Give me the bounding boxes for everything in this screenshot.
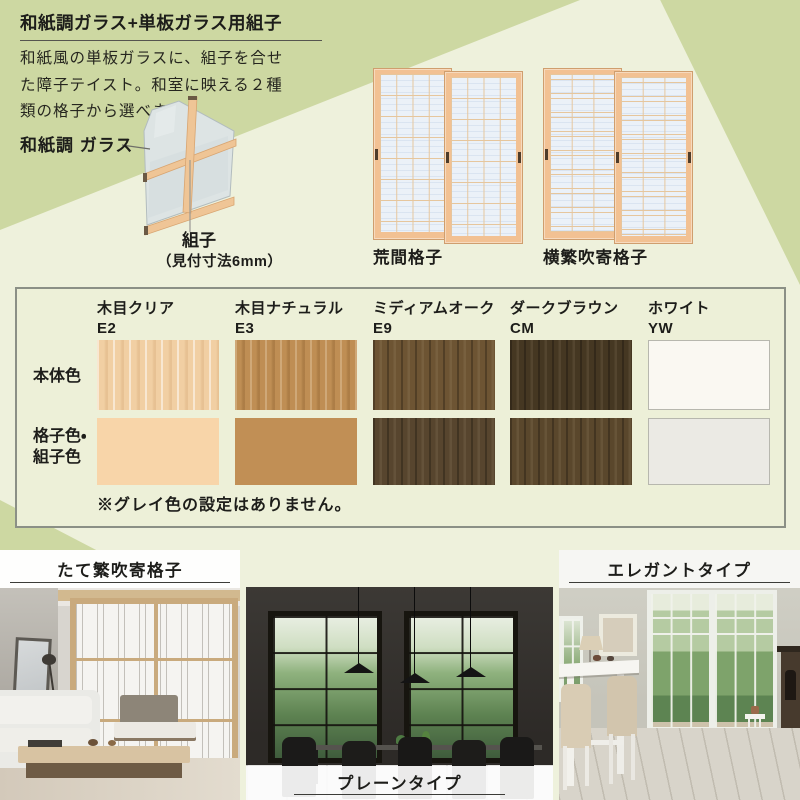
swatch-grille-yw: [648, 418, 770, 485]
swatch-grille-cm: [510, 418, 632, 485]
chair-leg: [585, 746, 589, 786]
washi-glass-pane: [451, 77, 516, 236]
color-column-header: ミディアムオーク E9: [373, 299, 495, 338]
window-handle: [375, 149, 378, 160]
chair-leg: [609, 734, 613, 784]
photo-plain-type-interior: プレーンタイプ: [246, 587, 553, 800]
beige-chair-back: [561, 684, 591, 748]
table-base: [26, 762, 182, 778]
window-panel: [444, 71, 523, 244]
swatch-grille-e2: [97, 418, 219, 485]
books: [28, 740, 62, 747]
photo-tateshige-interior: たて繁吹寄格子: [0, 550, 240, 800]
arama-grille-label: 荒間格子: [373, 244, 443, 268]
yokoshige-grille-window: [543, 66, 693, 244]
chair-seat: [114, 722, 196, 738]
photo-label-banner: たて繁吹寄格子: [0, 550, 240, 588]
pendant-cord: [414, 587, 415, 675]
window-handle: [446, 152, 449, 163]
color-name: ミディアムオーク: [373, 299, 495, 319]
color-column-header: 木目ナチュラル E3: [235, 299, 344, 338]
color-code: YW: [648, 319, 710, 339]
label-underline: [569, 582, 790, 583]
yokoshige-grille-label: 横繁吹寄格子: [543, 244, 648, 268]
cup: [607, 656, 614, 661]
wall-sconce-arm: [589, 650, 591, 662]
swatch-body-cm: [510, 340, 632, 410]
swatch-body-e9: [373, 340, 495, 410]
window-handle: [688, 152, 691, 163]
swatch-body-yw: [648, 340, 770, 410]
swatch-grille-e9: [373, 418, 495, 485]
pendant-cord: [470, 587, 471, 669]
swatch-body-e2: [97, 340, 219, 410]
sofa-cushion: [0, 696, 92, 724]
kumiko-size-note: （見付寸法6mm）: [157, 250, 282, 271]
washi-glass-diagram: [110, 92, 250, 247]
high-table-top: [559, 660, 639, 677]
no-gray-note: ※グレイ色の設定はありません。: [97, 491, 352, 515]
whitewashed-floor: [559, 728, 800, 800]
photo-label-banner: プレーンタイプ: [246, 766, 553, 800]
kumiko-diagram-label: 組子: [182, 226, 216, 251]
washi-glass-pane: [380, 74, 445, 232]
photo-label-banner: エレガントタイプ: [559, 550, 800, 588]
window-panel: [614, 71, 693, 244]
grille-color-row-label: 格子色・ 組子色: [33, 427, 86, 469]
window-panel: [373, 68, 452, 240]
color-name: ダークブラウン: [510, 299, 619, 319]
fireplace: [781, 652, 800, 728]
beige-chair-back: [607, 676, 637, 736]
chair-leg: [563, 746, 567, 790]
row-label-line: 組子色: [33, 448, 86, 469]
floor-lamp-shade: [42, 654, 56, 665]
color-column-header: ダークブラウン CM: [510, 299, 619, 338]
shoji-rail: [76, 658, 232, 661]
bowl: [108, 740, 116, 746]
planter-pot: [751, 706, 759, 714]
fireplace-opening: [785, 670, 796, 700]
color-name: 木目クリア: [97, 299, 175, 319]
picture-frame: [599, 614, 637, 656]
swatch-grille-e3: [235, 418, 357, 485]
window-handle: [616, 152, 619, 163]
color-name: ホワイト: [648, 299, 710, 319]
photo-label: プレーンタイプ: [246, 770, 553, 794]
color-code: CM: [510, 319, 619, 339]
swatch-body-e3: [235, 340, 357, 410]
cup: [593, 655, 601, 661]
color-column-header: ホワイト YW: [648, 299, 710, 338]
description-line: 和紙風の単板ガラスに、組子を合せ: [20, 46, 350, 73]
photo-elegant-type-interior: エレガントタイプ: [559, 550, 800, 800]
glass-diagram-label: 和紙調 ガラス: [20, 131, 133, 156]
washi-glass-pane: [550, 74, 615, 232]
color-selection-table: 木目クリア E2 木目ナチュラル E3 ミディアムオーク E9 ダークブラウン …: [15, 287, 786, 528]
catalog-page: 和紙調ガラス+単板ガラス用組子 和紙風の単板ガラスに、組子を合せ た障子テイスト…: [0, 0, 800, 800]
pendant-cord: [358, 587, 359, 665]
label-underline: [10, 582, 230, 583]
arama-grille-window: [373, 66, 523, 244]
body-color-row-label: 本体色: [33, 367, 81, 388]
label-underline: [294, 794, 505, 795]
window-panel: [543, 68, 622, 240]
color-column-header: 木目クリア E2: [97, 299, 175, 338]
color-code: E3: [235, 319, 344, 339]
window-handle: [545, 149, 548, 160]
window-handle: [518, 152, 521, 163]
wall-sconce-shade: [579, 636, 603, 650]
page-title: 和紙調ガラス+単板ガラス用組子: [20, 10, 322, 41]
color-name: 木目ナチュラル: [235, 299, 344, 319]
washi-glass-pane: [621, 77, 686, 236]
color-code: E2: [97, 319, 175, 339]
row-label-line: 格子色・: [33, 427, 86, 448]
color-code: E9: [373, 319, 495, 339]
photo-label: たて繁吹寄格子: [0, 557, 240, 581]
coffee-table-top: [18, 746, 190, 763]
chair-leg: [631, 734, 635, 780]
bowl: [88, 739, 98, 746]
photo-label: エレガントタイプ: [559, 557, 800, 581]
